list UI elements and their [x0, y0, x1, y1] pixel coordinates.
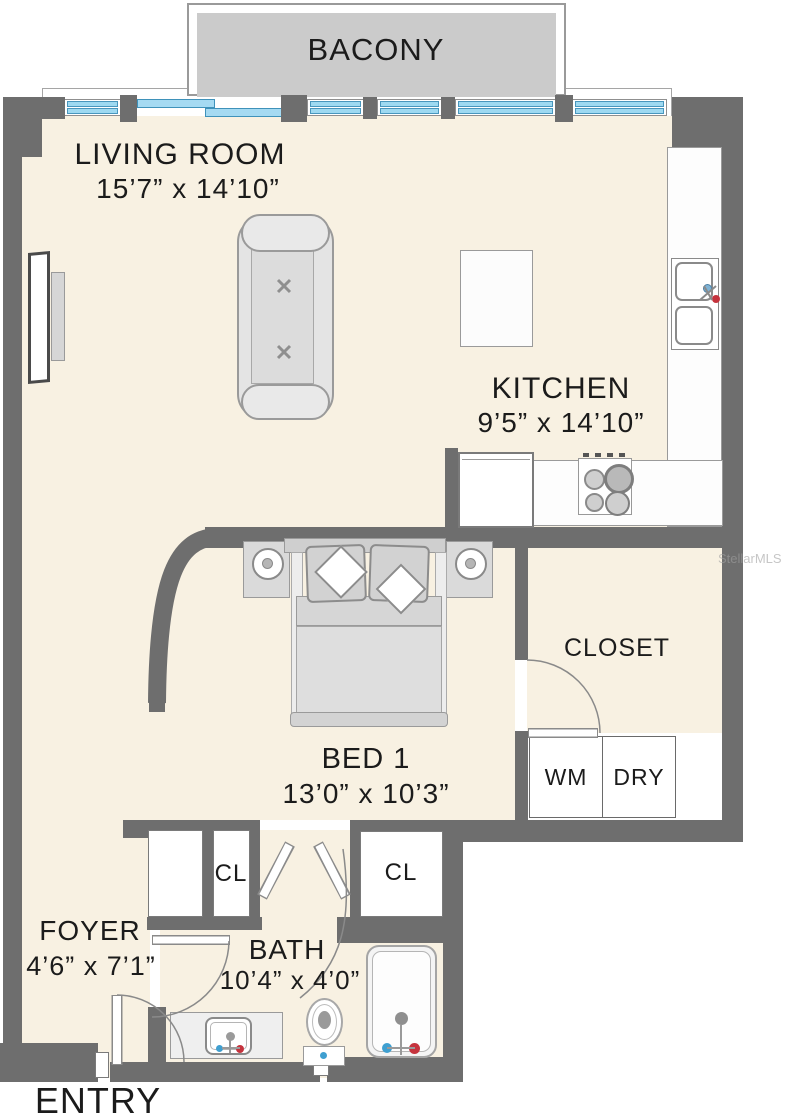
entry-label: ENTRY — [35, 1080, 161, 1117]
wall — [327, 1057, 463, 1082]
burner — [584, 469, 605, 490]
wall — [148, 1007, 166, 1067]
faucet-cold-icon — [703, 284, 712, 293]
tv — [28, 251, 50, 384]
burner — [605, 491, 630, 516]
window — [572, 99, 667, 116]
wall — [515, 548, 528, 660]
foyer-label: FOYER — [39, 915, 140, 947]
wall — [147, 917, 262, 930]
burner — [585, 493, 604, 512]
bathtub — [366, 945, 437, 1058]
toilet-valve-icon — [320, 1052, 327, 1059]
wall — [337, 917, 443, 943]
window — [455, 99, 556, 116]
lamp-icon — [465, 558, 476, 569]
wall — [445, 448, 458, 528]
bed1-dims: 13’0” x 10’3” — [282, 778, 449, 810]
couch-arm — [241, 214, 330, 252]
closet-right-label: CL — [385, 859, 418, 887]
closet-left-label: CL — [215, 860, 248, 888]
window-post — [441, 97, 455, 119]
tv-console — [51, 272, 65, 361]
faucet-cold-icon — [216, 1045, 223, 1052]
living-room-label: LIVING ROOM — [74, 138, 285, 172]
wall — [3, 97, 22, 1055]
vestibule-floor — [256, 830, 356, 930]
sliding-door-panel — [205, 108, 285, 117]
window — [377, 99, 442, 116]
dryer-label: DRY — [613, 764, 664, 791]
wall — [250, 830, 260, 920]
wall — [443, 833, 463, 1082]
washer-label: WM — [545, 764, 588, 791]
window-post — [363, 97, 377, 119]
bed1-label: BED 1 — [322, 743, 411, 776]
refrigerator — [458, 452, 534, 528]
bed-mattress — [296, 626, 442, 714]
kitchen-dims: 9’5” x 14’10” — [477, 407, 644, 439]
faucet-icon — [226, 1032, 235, 1041]
kitchen-sink — [671, 258, 719, 350]
wall — [110, 1062, 320, 1082]
door-jamb — [95, 1052, 109, 1078]
living-room-dims: 15’7” x 14’10” — [96, 173, 280, 205]
lamp-icon — [262, 558, 273, 569]
couch-seat — [251, 234, 314, 384]
floor-plan: BACONY — [0, 0, 791, 1117]
bath-dims: 10’4” x 4’0” — [220, 965, 361, 996]
wall — [515, 731, 528, 822]
stove-knobs — [583, 453, 629, 457]
window-post — [120, 95, 137, 122]
window — [307, 99, 364, 116]
wall — [0, 1043, 98, 1082]
toilet-bowl — [306, 998, 343, 1046]
couch-arm — [241, 384, 330, 420]
faucet-hot-icon — [236, 1045, 244, 1053]
closet-label: CLOSET — [564, 634, 670, 663]
faucet-hot-icon — [409, 1043, 420, 1054]
bed-foot-bar — [290, 712, 448, 727]
kitchen-island — [460, 250, 533, 347]
burner — [604, 464, 634, 494]
tub-drain-icon — [395, 1012, 408, 1025]
window — [64, 99, 121, 116]
wall — [203, 830, 213, 918]
foyer-dims: 4’6” x 7’1” — [26, 951, 156, 982]
closet-box — [148, 830, 203, 917]
bath-label: BATH — [249, 934, 326, 966]
wall — [722, 97, 743, 842]
window-post — [281, 95, 307, 122]
faucet-cold-icon — [382, 1043, 392, 1053]
wall — [455, 820, 743, 842]
watermark: StellarMLS — [718, 551, 791, 566]
faucet-hot-icon — [712, 295, 720, 303]
kitchen-label: KITCHEN — [492, 372, 631, 406]
sliding-door-panel — [137, 99, 215, 108]
window-post — [555, 95, 573, 122]
wall-curve-cap — [149, 700, 165, 712]
balcony-label: BACONY — [308, 32, 445, 68]
